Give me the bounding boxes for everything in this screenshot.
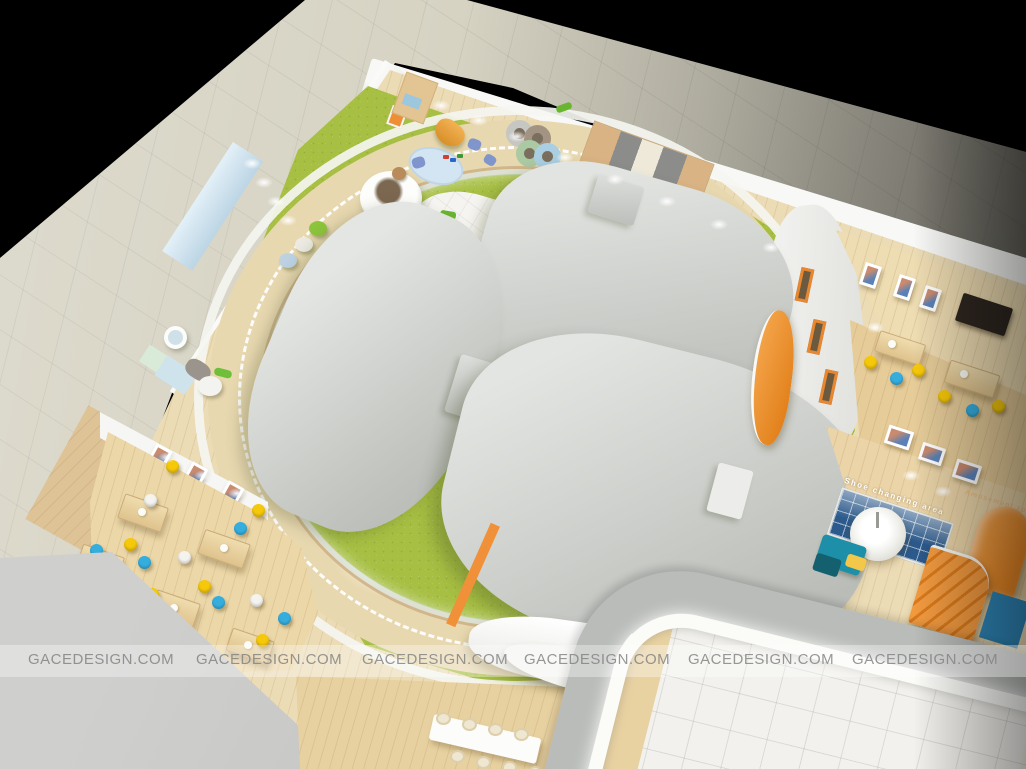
table-item-white (138, 508, 146, 516)
watermark-text: GACEDESIGN.COM (852, 651, 998, 668)
downlight-glow (710, 219, 728, 230)
stool-blue (278, 612, 291, 625)
dining-chair (436, 712, 451, 725)
downlight-glow (556, 152, 574, 163)
table-item-white (888, 340, 896, 348)
downlight-glow (255, 177, 273, 188)
downlight-glow (432, 100, 450, 111)
stool-blue (890, 372, 903, 385)
stepping-dot-blue (279, 253, 297, 268)
downlight-glow (228, 488, 246, 499)
stool-blue (966, 404, 979, 417)
downlight-glow (606, 174, 624, 185)
stool-yellow (912, 364, 925, 377)
stool-yellow (252, 504, 265, 517)
downlight-glow (194, 470, 212, 481)
dining-chair (502, 761, 517, 769)
teddy-bear-toy (392, 167, 406, 180)
round-table-white (198, 376, 222, 396)
downlight-glow (902, 470, 920, 481)
downlight-glow (934, 486, 952, 497)
watermark-text: GACEDESIGN.COM (28, 651, 174, 668)
porthole-mirror (164, 326, 187, 349)
downlight-glow (658, 196, 676, 207)
stepping-dot-white (295, 237, 313, 252)
render-scene: Shoe changing area Amusement zone (0, 0, 1026, 769)
watermark-text: GACEDESIGN.COM (524, 651, 670, 668)
downlight-glow (508, 131, 526, 142)
stool-white (144, 494, 157, 507)
stool-yellow (992, 400, 1005, 413)
stool-yellow (198, 580, 211, 593)
dining-chair (514, 728, 529, 741)
dining-chair (450, 750, 465, 763)
stool-yellow (864, 356, 877, 369)
stepping-dot-green (309, 221, 327, 236)
watermark-band: GACEDESIGN.COM GACEDESIGN.COM GACEDESIGN… (0, 645, 1026, 677)
stool-white (250, 594, 263, 607)
watermark-text: GACEDESIGN.COM (688, 651, 834, 668)
downlight-glow (470, 115, 488, 126)
downlight-glow (158, 452, 176, 463)
downlight-glow (866, 322, 884, 333)
downlight-glow (762, 242, 780, 253)
watermark-text: GACEDESIGN.COM (196, 651, 342, 668)
stool-white (178, 551, 191, 564)
stool-yellow (124, 538, 137, 551)
dining-chair (476, 756, 491, 769)
table-item-white (220, 544, 228, 552)
downlight-glow (243, 158, 261, 169)
stool-blue (234, 522, 247, 535)
dining-chair (488, 723, 503, 736)
lamp-stem (876, 512, 879, 528)
stool-blue (212, 596, 225, 609)
toy-car-red (443, 155, 449, 159)
table-item-white (960, 370, 968, 378)
downlight-glow (267, 196, 285, 207)
downlight-glow (279, 215, 297, 226)
dining-chair (462, 718, 477, 731)
toy-car-green (457, 154, 463, 158)
stool-yellow (938, 390, 951, 403)
toy-car-blue (450, 158, 456, 162)
stool-blue (138, 556, 151, 569)
watermark-text: GACEDESIGN.COM (362, 651, 508, 668)
